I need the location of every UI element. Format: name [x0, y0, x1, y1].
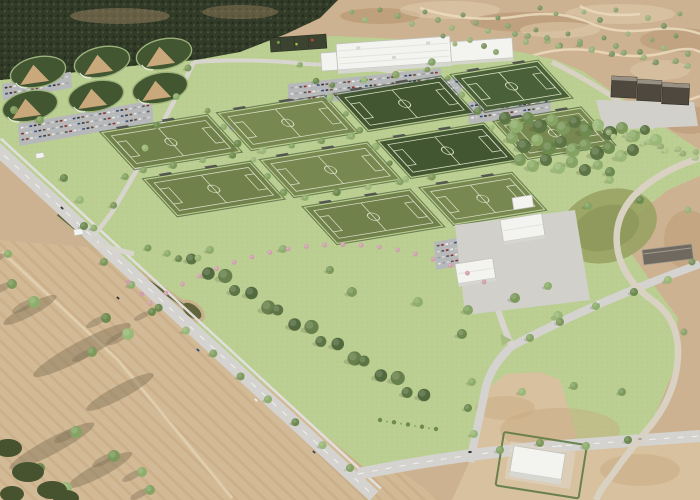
tree-highlight [641, 141, 644, 144]
parked-car [400, 75, 403, 77]
tree-highlight [464, 306, 470, 312]
tree-highlight [176, 256, 180, 260]
tree-highlight [619, 389, 623, 393]
tree-highlight [475, 108, 479, 112]
tree-highlight [534, 28, 537, 31]
shrub-seedling [414, 425, 416, 427]
flowering-tree-highlight [482, 280, 484, 282]
shrub [406, 422, 410, 426]
tree-highlight [316, 337, 322, 343]
tree-highlight [593, 303, 597, 307]
tree-highlight [102, 314, 108, 320]
shrub-seedling [428, 427, 430, 429]
tree-highlight [361, 77, 365, 81]
tree-highlight [142, 145, 146, 149]
parked-car [409, 74, 412, 76]
tree-highlight [506, 24, 509, 27]
flowering-tree-highlight [341, 243, 343, 245]
tree-highlight [489, 125, 492, 128]
tree-highlight [101, 259, 105, 263]
tree-highlight [497, 447, 501, 451]
tree-highlight [306, 321, 314, 329]
tree-highlight [507, 133, 514, 140]
facility-west-wing [321, 52, 338, 71]
shrub [434, 427, 438, 431]
tree-highlight [654, 60, 657, 63]
tree-highlight [685, 207, 689, 211]
tree-highlight [465, 405, 469, 409]
tree-highlight [567, 157, 574, 164]
tree-highlight [441, 34, 444, 37]
tree-highlight [327, 267, 331, 271]
tree-highlight [8, 280, 14, 286]
flowering-tree [140, 292, 145, 297]
tree-highlight [646, 140, 649, 143]
tree-highlight [122, 174, 126, 178]
tree-highlight [545, 36, 548, 39]
parked-car [352, 80, 355, 82]
tree-highlight [610, 52, 613, 55]
tree-highlight [676, 147, 679, 150]
parked-car [455, 87, 458, 89]
tree-highlight [348, 133, 352, 137]
flowering-tree-highlight [378, 245, 380, 247]
tree-highlight [334, 189, 338, 193]
scrub-patch [520, 22, 600, 38]
tree-highlight [580, 140, 587, 147]
tree-highlight [246, 288, 253, 295]
tree-highlight [378, 8, 381, 11]
rooftop-unit [392, 56, 396, 59]
flowering-tree-highlight [286, 247, 288, 249]
tree-highlight [262, 302, 270, 310]
tree-highlight [681, 151, 684, 154]
tree-highlight [515, 155, 522, 162]
tree-highlight [290, 143, 293, 146]
tree-highlight [403, 177, 407, 181]
tree-highlight [570, 117, 577, 124]
flowering-tree-highlight [250, 255, 252, 257]
parked-car [304, 91, 307, 93]
tree-highlight [469, 379, 473, 383]
tree-highlight [598, 18, 601, 21]
tree-highlight [554, 312, 560, 318]
scrub-patch [630, 60, 690, 80]
tree-highlight [273, 305, 279, 311]
parked-car [352, 86, 355, 88]
parked-car [343, 87, 346, 89]
car [558, 445, 561, 447]
tree-highlight [590, 48, 593, 51]
tree-highlight [203, 268, 210, 275]
tree-highlight [149, 309, 153, 313]
tree-highlight [289, 319, 296, 326]
tree-highlight [494, 50, 497, 53]
tree-highlight [425, 67, 428, 70]
shrub [392, 420, 396, 424]
flowering-tree-highlight [414, 252, 416, 254]
tree-highlight [471, 431, 475, 435]
parked-car [404, 75, 407, 77]
tree-highlight [625, 437, 629, 441]
parked-car [426, 73, 429, 75]
parked-car [295, 86, 298, 88]
tree-highlight [77, 197, 81, 201]
tree-highlight [624, 133, 627, 136]
tree-highlight [461, 13, 464, 16]
rooftop-unit [356, 46, 360, 49]
tree-highlight [557, 319, 561, 323]
parked-car [431, 72, 434, 74]
tree-highlight [663, 148, 666, 151]
tree-highlight [319, 442, 323, 446]
tree-highlight [88, 348, 94, 354]
tree-highlight [280, 246, 284, 250]
tree-highlight [265, 396, 269, 400]
tree-highlight [183, 327, 187, 331]
parked-car [317, 84, 320, 86]
flowering-tree-highlight [232, 261, 234, 263]
tree-highlight [423, 10, 426, 13]
shrub [378, 418, 382, 422]
tree-highlight [319, 138, 323, 142]
flowering-tree-highlight [268, 251, 270, 253]
tree-highlight [642, 55, 645, 58]
parked-car [417, 74, 420, 76]
tree-highlight [604, 143, 611, 150]
car [638, 438, 641, 440]
flowering-tree-highlight [164, 291, 166, 293]
forest-clearing [70, 8, 170, 24]
parked-car [317, 90, 320, 92]
forest-clearing [202, 5, 278, 19]
tree-highlight [347, 465, 351, 469]
parked-car [347, 87, 350, 89]
tree-highlight [641, 126, 647, 132]
tree-highlight [359, 356, 365, 362]
tree-highlight [170, 162, 174, 166]
tree-highlight [235, 140, 239, 144]
tree-highlight [617, 123, 624, 130]
tree-highlight [123, 329, 130, 336]
tree-highlight [292, 419, 296, 423]
parked-car [321, 84, 324, 86]
parked-car [369, 85, 372, 87]
tree-highlight [580, 124, 588, 132]
tree-highlight [628, 137, 631, 140]
parked-car [387, 77, 390, 79]
tree-highlight [614, 8, 617, 11]
tree-highlight [567, 144, 575, 152]
tree-highlight [674, 59, 677, 62]
screenshot-stage [0, 0, 700, 500]
tree-highlight [230, 286, 236, 292]
tree-highlight [526, 34, 529, 37]
tree-highlight [221, 124, 225, 128]
parked-car [312, 91, 315, 93]
tree-highlight [662, 46, 665, 49]
flowering-tree-highlight [449, 264, 451, 266]
tree-highlight [638, 50, 641, 53]
parked-car [339, 82, 342, 84]
tree-highlight [436, 18, 439, 21]
small-hut [36, 152, 45, 158]
tree-highlight [631, 289, 635, 293]
parked-car [413, 74, 416, 76]
tree-highlight [662, 24, 665, 27]
parked-car [295, 92, 298, 94]
brush-thicket [12, 462, 44, 482]
parked-car [299, 86, 302, 88]
tree-highlight [543, 142, 551, 150]
tree-highlight [363, 18, 366, 21]
tree-highlight [303, 195, 307, 199]
parked-car [369, 79, 372, 81]
tree-highlight [459, 92, 463, 96]
tree-highlight [486, 29, 489, 32]
tree-highlight [686, 64, 689, 67]
tree-highlight [582, 10, 585, 13]
tree-highlight [659, 144, 662, 147]
car [468, 451, 471, 453]
tree-highlight [541, 155, 548, 162]
parked-car [382, 77, 385, 79]
tree-highlight [585, 203, 589, 207]
tree-highlight [173, 94, 177, 98]
tree-highlight [532, 135, 539, 142]
tree-highlight [185, 65, 189, 69]
tree-highlight [602, 36, 605, 39]
tree-highlight [111, 202, 115, 206]
tree-highlight [578, 40, 581, 43]
flowering-tree-highlight [466, 271, 468, 273]
parked-car [347, 81, 350, 83]
tree-highlight [333, 339, 340, 346]
tree-highlight [29, 297, 36, 304]
tree-highlight [524, 40, 527, 43]
tree-highlight [566, 32, 569, 35]
tree-highlight [523, 113, 530, 120]
tree-highlight [571, 383, 575, 387]
shrub-seedling [400, 423, 402, 425]
flowering-tree-highlight [181, 282, 183, 284]
tree-highlight [628, 145, 635, 152]
tree-highlight [674, 34, 677, 37]
tree-highlight [650, 38, 653, 41]
tree-highlight [251, 157, 254, 160]
tree-highlight [410, 22, 413, 25]
parked-car [365, 85, 368, 87]
tree-highlight [534, 120, 542, 128]
tree-highlight [414, 298, 420, 304]
flowering-tree-highlight [323, 243, 325, 245]
parked-car [308, 91, 311, 93]
tree-highlight [637, 197, 641, 201]
tree-highlight [164, 250, 168, 254]
tree-highlight [694, 150, 697, 153]
tree-highlight [547, 115, 554, 122]
rooftop-unit [426, 41, 430, 44]
tree-highlight [557, 122, 565, 130]
tree-highlight [554, 12, 557, 15]
tree-highlight [528, 161, 535, 168]
tree-highlight [141, 167, 145, 171]
tree-highlight [373, 143, 377, 147]
parked-car [343, 81, 346, 83]
tree-highlight [429, 174, 433, 178]
tree-highlight [37, 117, 41, 121]
tree-highlight [344, 111, 347, 114]
tree-highlight [556, 44, 559, 47]
tree-highlight [665, 277, 669, 281]
tree-highlight [81, 223, 85, 227]
tree-highlight [453, 42, 456, 45]
tree-highlight [280, 189, 284, 193]
tree-highlight [403, 388, 409, 394]
tree-highlight [468, 38, 471, 41]
tree-highlight [313, 78, 317, 82]
tree-highlight [681, 329, 685, 333]
tree-highlight [450, 26, 453, 29]
tree-highlight [195, 255, 199, 259]
tree-highlight [545, 283, 549, 287]
tree-highlight [606, 130, 609, 133]
tree-highlight [500, 113, 507, 120]
tree-highlight [474, 21, 477, 24]
flowering-tree-highlight [305, 245, 307, 247]
flowering-tree-highlight [215, 267, 217, 269]
parked-car [334, 88, 337, 90]
tree-highlight [298, 62, 301, 65]
tree-highlight [606, 168, 612, 174]
tree-highlight [419, 390, 426, 397]
parked-car [451, 81, 454, 83]
tree-highlight [429, 59, 433, 63]
parked-car [291, 87, 294, 89]
tree-highlight [366, 185, 369, 188]
tree-highlight [689, 259, 693, 263]
tree-highlight [511, 294, 517, 300]
aerial-rendering-sports-complex [0, 0, 700, 500]
tree-highlight [109, 451, 116, 458]
flowering-tree-highlight [148, 301, 150, 303]
tree-highlight [537, 440, 541, 444]
tree-highlight [458, 330, 464, 336]
tree-highlight [538, 6, 541, 9]
tree-highlight [71, 427, 78, 434]
tree-highlight [678, 12, 681, 15]
tree-highlight [616, 151, 623, 158]
tree-highlight [5, 251, 9, 255]
tree-highlight [694, 156, 697, 159]
tree-highlight [91, 225, 95, 229]
flowering-tree-highlight [198, 274, 200, 276]
parked-car [378, 78, 381, 80]
tree-highlight [396, 14, 399, 17]
tree-highlight [11, 107, 15, 111]
tree-highlight [327, 94, 331, 98]
tree-highlight [646, 16, 649, 19]
tree-highlight [154, 122, 158, 126]
tree-highlight [594, 161, 600, 167]
tree-highlight [554, 163, 561, 170]
tree-highlight [207, 247, 211, 251]
tree-highlight [349, 353, 357, 361]
parked-car [330, 89, 333, 91]
parked-car [312, 85, 315, 87]
parked-car [435, 72, 438, 74]
tree-highlight [219, 270, 227, 278]
parked-car [422, 73, 425, 75]
tree-highlight [686, 52, 689, 55]
tree-highlight [607, 177, 611, 181]
parked-car [299, 92, 302, 94]
tree-highlight [265, 174, 269, 178]
tree-highlight [388, 161, 391, 164]
tree-highlight [510, 120, 518, 128]
tree-highlight [496, 16, 499, 19]
parked-car [326, 89, 329, 91]
tree-highlight [482, 44, 485, 47]
tree-highlight [138, 468, 144, 474]
tree-highlight [61, 175, 65, 179]
tree-highlight [210, 350, 214, 354]
tree-highlight [348, 288, 354, 294]
tree-highlight [651, 135, 658, 142]
parked-car [291, 93, 294, 95]
tree-highlight [519, 389, 523, 393]
tree-highlight [393, 72, 397, 76]
tree-highlight [518, 140, 526, 148]
tree-highlight [205, 108, 208, 111]
flowering-tree-highlight [431, 257, 433, 259]
parked-car [356, 80, 359, 82]
parked-car [374, 78, 377, 80]
tree-highlight [187, 254, 193, 260]
parked-car [326, 83, 329, 85]
tree-highlight [237, 373, 241, 377]
tree-highlight [594, 126, 597, 129]
tree-highlight [146, 486, 152, 492]
tree-highlight [626, 32, 629, 35]
tree-highlight [259, 147, 263, 151]
tree-highlight [591, 147, 599, 155]
parked-car [321, 90, 324, 92]
tree-highlight [398, 179, 402, 183]
tree-highlight [376, 370, 383, 377]
tree-highlight [527, 335, 531, 339]
tree-highlight [611, 134, 614, 137]
tree-highlight [622, 50, 625, 53]
tree-highlight [446, 76, 449, 79]
tree-highlight [145, 245, 149, 249]
flowering-tree [126, 280, 131, 285]
tree-highlight [556, 137, 563, 144]
flowering-tree-highlight [396, 248, 398, 250]
tree-highlight [230, 153, 234, 157]
shrub-seedling [386, 421, 388, 423]
shrub [420, 425, 424, 429]
tree-highlight [513, 32, 516, 35]
tree-highlight [614, 44, 617, 47]
parked-car [339, 88, 342, 90]
flowering-tree-highlight [360, 244, 362, 246]
tree-highlight [201, 158, 204, 161]
tree-highlight [350, 10, 353, 13]
tree-highlight [583, 443, 587, 447]
parked-car [308, 85, 311, 87]
parked-car [378, 84, 381, 86]
